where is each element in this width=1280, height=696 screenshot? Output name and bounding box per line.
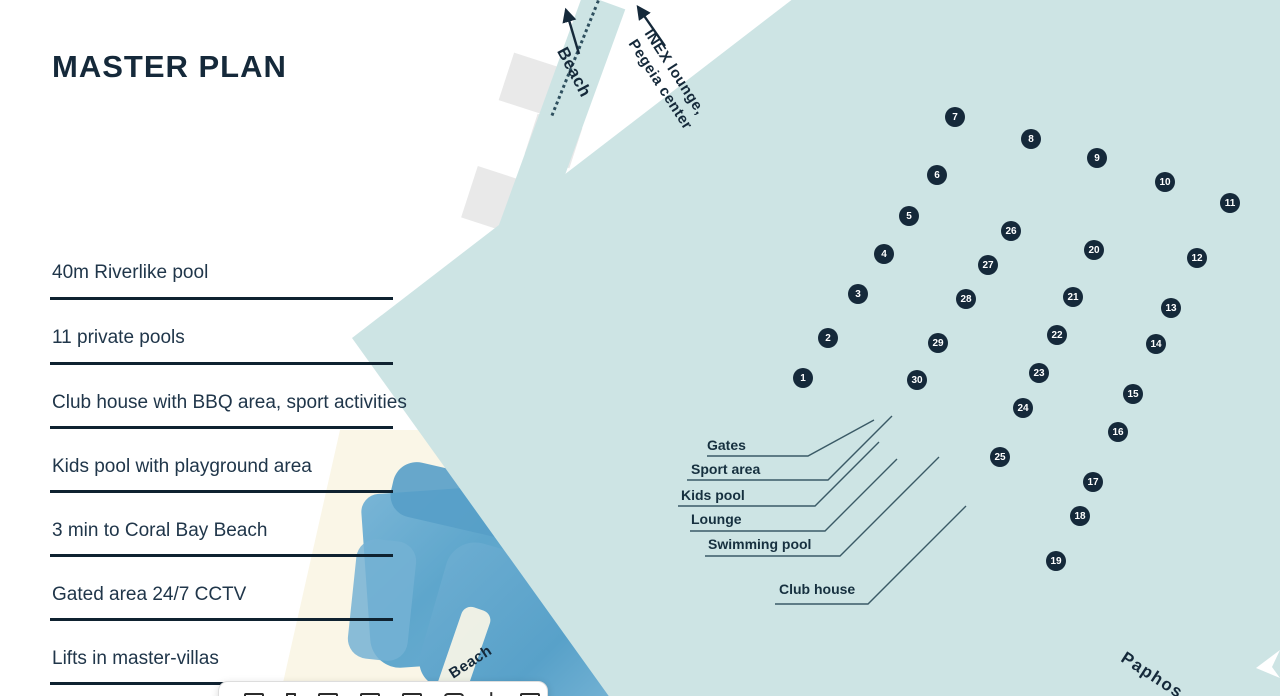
unit-marker-22[interactable]: 22 xyxy=(1047,325,1067,345)
callout-club-house: Club house xyxy=(779,581,855,597)
feature-item: Lifts in master-villas xyxy=(52,648,219,670)
feature-item: 3 min to Coral Bay Beach xyxy=(52,520,267,542)
unit-marker-16[interactable]: 16 xyxy=(1108,422,1128,442)
unit-marker-28[interactable]: 28 xyxy=(956,289,976,309)
unit-marker-7[interactable]: 7 xyxy=(945,107,965,127)
unit-marker-10[interactable]: 10 xyxy=(1155,172,1175,192)
unit-marker-24[interactable]: 24 xyxy=(1013,398,1033,418)
viewer-toolbar[interactable] xyxy=(218,681,548,696)
unit-marker-2[interactable]: 2 xyxy=(818,328,838,348)
feature-divider xyxy=(50,490,393,493)
unit-marker-14[interactable]: 14 xyxy=(1146,334,1166,354)
unit-marker-17[interactable]: 17 xyxy=(1083,472,1103,492)
callout-lounge: Lounge xyxy=(691,511,742,527)
unit-marker-25[interactable]: 25 xyxy=(990,447,1010,467)
feature-item: 11 private pools xyxy=(52,327,185,349)
unit-marker-21[interactable]: 21 xyxy=(1063,287,1083,307)
unit-marker-12[interactable]: 12 xyxy=(1187,248,1207,268)
unit-marker-27[interactable]: 27 xyxy=(978,255,998,275)
feature-divider xyxy=(50,362,393,365)
unit-marker-8[interactable]: 8 xyxy=(1021,129,1041,149)
unit-marker-26[interactable]: 26 xyxy=(1001,221,1021,241)
feature-divider xyxy=(50,618,393,621)
page-title: MASTER PLAN xyxy=(52,49,287,85)
feature-item: Club house with BBQ area, sport activiti… xyxy=(52,392,407,414)
unit-marker-4[interactable]: 4 xyxy=(874,244,894,264)
feature-item: Kids pool with playground area xyxy=(52,456,312,478)
unit-marker-11[interactable]: 11 xyxy=(1220,193,1240,213)
unit-marker-15[interactable]: 15 xyxy=(1123,384,1143,404)
feature-divider xyxy=(50,554,393,557)
unit-marker-3[interactable]: 3 xyxy=(848,284,868,304)
feature-item: Gated area 24/7 CCTV xyxy=(52,584,246,606)
callout-swimming-pool: Swimming pool xyxy=(708,536,811,552)
unit-marker-5[interactable]: 5 xyxy=(899,206,919,226)
callout-kids-pool: Kids pool xyxy=(681,487,745,503)
master-plan-page: Beach INEX lounge, Pegeia center Beach P… xyxy=(0,0,1280,696)
unit-marker-29[interactable]: 29 xyxy=(928,333,948,353)
unit-marker-9[interactable]: 9 xyxy=(1087,148,1107,168)
unit-marker-19[interactable]: 19 xyxy=(1046,551,1066,571)
unit-marker-20[interactable]: 20 xyxy=(1084,240,1104,260)
feature-item: 40m Riverlike pool xyxy=(52,262,208,284)
unit-marker-23[interactable]: 23 xyxy=(1029,363,1049,383)
callout-gates: Gates xyxy=(707,437,746,453)
unit-marker-18[interactable]: 18 xyxy=(1070,506,1090,526)
unit-marker-13[interactable]: 13 xyxy=(1161,298,1181,318)
feature-divider xyxy=(50,297,393,300)
unit-marker-30[interactable]: 30 xyxy=(907,370,927,390)
unit-marker-6[interactable]: 6 xyxy=(927,165,947,185)
feature-divider xyxy=(50,426,393,429)
callout-sport-area: Sport area xyxy=(691,461,760,477)
unit-marker-1[interactable]: 1 xyxy=(793,368,813,388)
